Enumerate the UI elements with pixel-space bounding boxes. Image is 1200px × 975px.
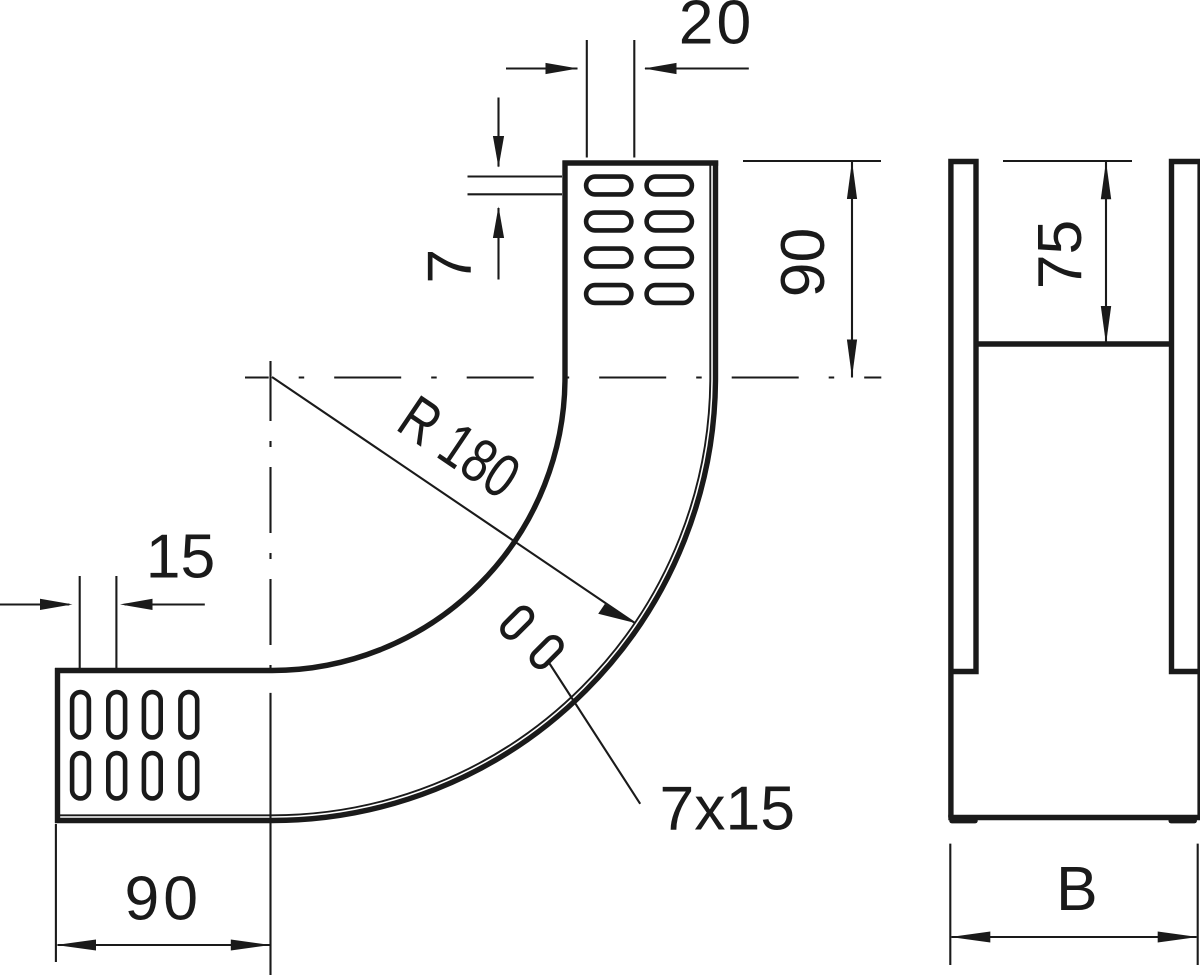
svg-text:20: 20 bbox=[679, 0, 755, 58]
svg-text:90: 90 bbox=[125, 864, 203, 934]
svg-text:15: 15 bbox=[146, 522, 216, 592]
svg-text:7x15: 7x15 bbox=[660, 773, 796, 843]
svg-text:75: 75 bbox=[1025, 220, 1095, 290]
svg-text:90: 90 bbox=[768, 228, 838, 298]
svg-text:B: B bbox=[1056, 854, 1098, 924]
svg-text:7: 7 bbox=[415, 249, 485, 284]
